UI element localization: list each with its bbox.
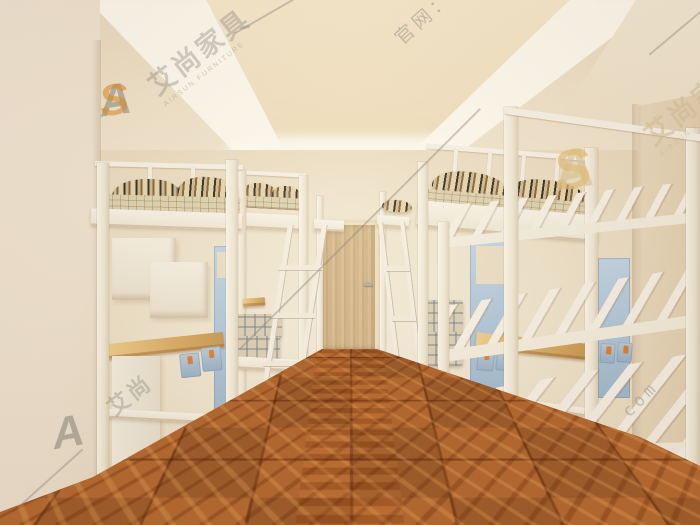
drawer-handle [209,350,215,358]
drawer [599,343,615,364]
ladder-rung [392,316,417,321]
ladder-rung [249,453,294,458]
drawer-handle [623,345,629,353]
bed-post [226,160,238,462]
drawer [179,352,201,378]
ladder-rung [271,313,316,318]
door-handle [364,282,373,286]
ladder-rung [386,266,411,271]
bed-post [418,162,428,467]
rack-post [686,128,700,525]
rack-post [438,222,449,525]
locker-right-panel [476,246,506,284]
ladder-rung [279,265,324,270]
drawer [200,346,222,372]
drawer [617,342,633,363]
rack-post [504,107,518,525]
drawer-handle [187,356,193,364]
ladder-rung [263,361,308,366]
bed-post [97,163,109,475]
desk-top-left2 [243,297,266,307]
drawer-handle [606,346,612,354]
ladder-rung [256,409,301,414]
left-wall [0,0,100,525]
overhead-cabinet [150,262,208,318]
drawer-unit-left1 [179,346,226,380]
dorm-room-render: AS 艾尚家具 AIRSUN FURNITURE 官网：www.as505.co… [0,0,700,525]
